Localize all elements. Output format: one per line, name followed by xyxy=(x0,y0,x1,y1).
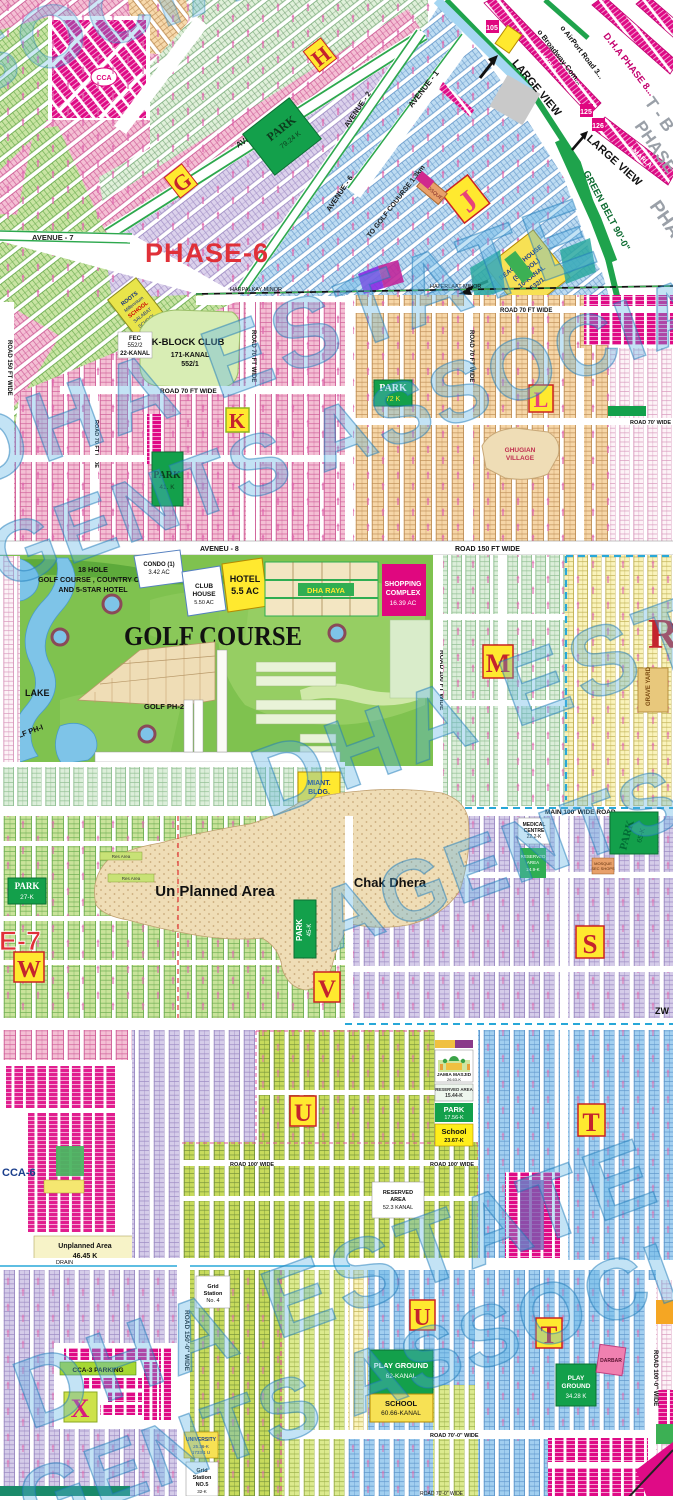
svg-text:ZW: ZW xyxy=(655,1006,669,1016)
svg-text:125: 125 xyxy=(580,109,592,116)
svg-text:AVENEU - 8: AVENEU - 8 xyxy=(200,546,239,553)
svg-text:ROAD 100' WIDE: ROAD 100' WIDE xyxy=(230,1162,274,1168)
svg-text:Res Area: Res Area xyxy=(122,876,141,881)
svg-text:SHOPPING: SHOPPING xyxy=(385,581,423,588)
svg-text:23.67-K: 23.67-K xyxy=(444,1138,464,1144)
svg-text:School: School xyxy=(441,1127,466,1136)
svg-text:RESERVED AREA: RESERVED AREA xyxy=(435,1087,473,1092)
svg-text:HOTEL: HOTEL xyxy=(230,574,261,584)
svg-text:26.63-K: 26.63-K xyxy=(447,1077,461,1082)
svg-text:Un Planned Area: Un Planned Area xyxy=(155,883,275,900)
svg-text:DARBAR: DARBAR xyxy=(600,1358,622,1364)
svg-text:GHUGIAN: GHUGIAN xyxy=(505,447,536,454)
svg-text:27-K: 27-K xyxy=(20,894,34,901)
svg-text:45-K: 45-K xyxy=(307,924,313,937)
svg-text:CONDO (1): CONDO (1) xyxy=(143,562,174,568)
svg-text:DHA RAYA: DHA RAYA xyxy=(307,586,346,595)
svg-text:ROAD 150 FT WIDE: ROAD 150 FT WIDE xyxy=(455,546,520,553)
svg-text:DRAIN: DRAIN xyxy=(56,1260,73,1266)
svg-text:3.42 AC: 3.42 AC xyxy=(148,570,170,576)
svg-text:CCA-6: CCA-6 xyxy=(2,1167,36,1179)
svg-text:V: V xyxy=(318,976,336,1003)
svg-text:34.28 K: 34.28 K xyxy=(566,1394,587,1400)
svg-text:15.44-K: 15.44-K xyxy=(445,1093,463,1099)
svg-text:126: 126 xyxy=(592,123,604,130)
svg-text:ROAD 70'-0" WIDE: ROAD 70'-0" WIDE xyxy=(420,1491,464,1497)
svg-text:AND 5-STAR HOTEL: AND 5-STAR HOTEL xyxy=(58,585,128,594)
svg-text:GROUND: GROUND xyxy=(562,1383,591,1390)
svg-text:PHASE-6: PHASE-6 xyxy=(145,238,269,268)
svg-text:5.50 AC: 5.50 AC xyxy=(194,600,214,606)
svg-text:ROAD 100' WIDE: ROAD 100' WIDE xyxy=(430,1162,474,1168)
svg-text:W: W xyxy=(17,957,41,983)
svg-text:ROAD 70' WIDE: ROAD 70' WIDE xyxy=(630,420,671,426)
svg-text:LAKE: LAKE xyxy=(25,688,50,698)
svg-text:PARK: PARK xyxy=(295,919,304,941)
svg-text:U: U xyxy=(294,1100,312,1127)
svg-text:ROAD 100'-0" WIDE: ROAD 100'-0" WIDE xyxy=(652,1350,658,1406)
svg-text:RESERVED: RESERVED xyxy=(383,1190,413,1196)
svg-text:AVENUE - 7: AVENUE - 7 xyxy=(32,233,74,242)
svg-text:16.39 AC: 16.39 AC xyxy=(390,600,417,607)
svg-text:5.5 AC: 5.5 AC xyxy=(231,586,259,596)
svg-text:PLAY: PLAY xyxy=(568,1375,585,1382)
svg-text:VILLAGE: VILLAGE xyxy=(506,455,535,462)
svg-text:COMPLEX: COMPLEX xyxy=(386,590,421,597)
svg-text:S: S xyxy=(582,929,597,959)
svg-text:17.56-K: 17.56-K xyxy=(444,1115,464,1121)
svg-text:CLUB: CLUB xyxy=(195,583,213,590)
svg-text:Res Area: Res Area xyxy=(112,854,131,859)
svg-text:GOLF PH-2: GOLF PH-2 xyxy=(144,702,184,711)
svg-text:HOUSE: HOUSE xyxy=(192,591,216,598)
svg-text:PARK: PARK xyxy=(15,881,40,891)
svg-text:105: 105 xyxy=(486,25,498,32)
svg-text:Unplanned Area: Unplanned Area xyxy=(58,1243,112,1250)
svg-text:ROAD 70'-0" WIDE: ROAD 70'-0" WIDE xyxy=(430,1433,479,1439)
svg-text:PARK: PARK xyxy=(444,1105,465,1114)
